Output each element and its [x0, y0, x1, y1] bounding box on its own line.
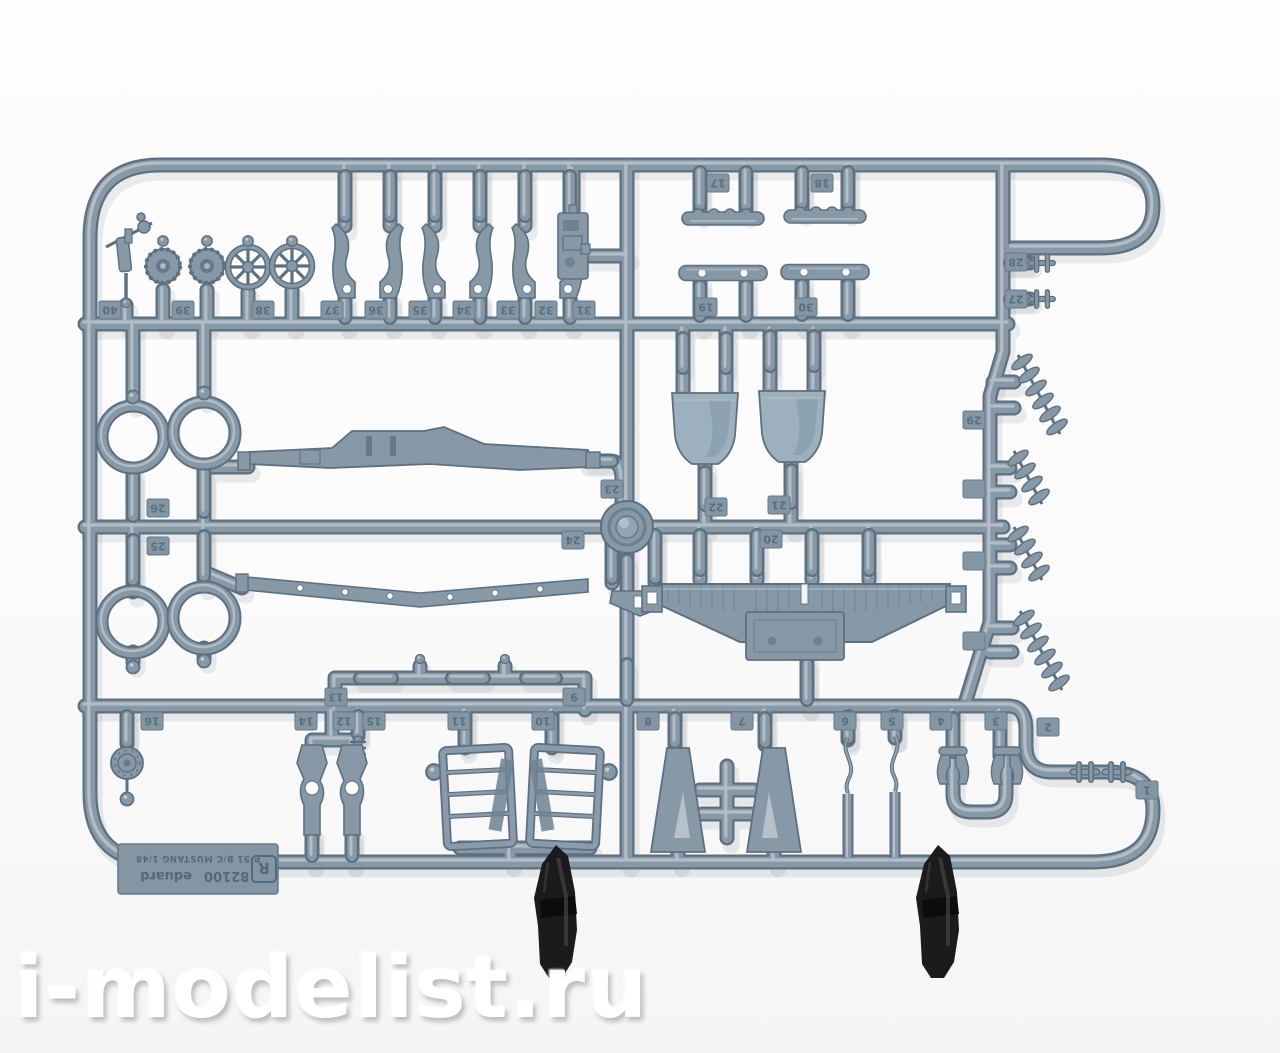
part-number-tab: 6	[834, 712, 856, 730]
svg-text:11: 11	[451, 715, 466, 728]
part-number-tab: 1	[1136, 781, 1158, 799]
svg-text:1: 1	[1143, 784, 1151, 797]
svg-text:16: 16	[144, 715, 160, 728]
svg-text:31: 31	[576, 304, 591, 317]
part-number-tab: 33	[497, 301, 519, 319]
part-number-tab	[963, 552, 985, 570]
part-gear-brackets	[297, 745, 367, 835]
part-intake-scoops	[672, 391, 825, 464]
part-number-tab: 40	[99, 301, 121, 319]
part-number-tab: 21	[768, 496, 790, 514]
svg-text:27: 27	[1008, 293, 1023, 306]
part-number-tab: 37	[321, 301, 343, 319]
part-brackets-row	[332, 224, 583, 298]
part-number-tab: 22	[705, 498, 727, 516]
svg-text:19: 19	[698, 301, 713, 314]
part-number-tab: 8	[637, 712, 659, 730]
part-pitot-tees	[1031, 256, 1053, 306]
part-number-tab: 39	[172, 301, 194, 319]
svg-text:8: 8	[644, 715, 652, 728]
svg-text:21: 21	[771, 499, 786, 512]
part-number-tab: 5	[881, 712, 903, 730]
part-number-tab: 29	[963, 411, 985, 429]
part-radio-box	[558, 205, 590, 279]
svg-text:6: 6	[841, 715, 849, 728]
part-exhaust-manifolds	[679, 207, 869, 281]
part-wheel-hubs	[146, 246, 312, 287]
svg-text:2: 2	[1044, 721, 1052, 734]
svg-text:23: 23	[604, 483, 619, 496]
svg-text:30: 30	[798, 301, 814, 314]
part-number-tab: 28	[1005, 253, 1027, 271]
svg-text:3: 3	[992, 715, 1000, 728]
svg-text:25: 25	[150, 540, 165, 553]
part-number-tab: 17	[707, 174, 729, 192]
part-number-tab: 18	[811, 174, 833, 192]
part-number-tab: 2	[1037, 718, 1059, 736]
part-number-tab: 7	[731, 712, 753, 730]
sprue-letter: R	[258, 859, 270, 877]
svg-text:39: 39	[175, 304, 190, 317]
part-number-tab: 16	[141, 712, 163, 730]
svg-text:5: 5	[888, 715, 896, 728]
sprue-label-code: 82100	[204, 868, 249, 883]
part-number-tab: 13	[325, 688, 347, 706]
part-number-tab: 30	[795, 298, 817, 316]
part-number-tab: 26	[147, 499, 169, 517]
part-number-tab: 4	[930, 712, 952, 730]
part-number-tab: 10	[532, 712, 554, 730]
svg-text:38: 38	[255, 304, 270, 317]
svg-text:17: 17	[710, 177, 725, 190]
part-gunsight	[106, 213, 152, 299]
part-number-tab: 24	[562, 531, 584, 549]
part-number-tab: 14	[295, 712, 317, 730]
svg-text:20: 20	[763, 533, 779, 546]
svg-text:14: 14	[298, 715, 314, 728]
svg-text:35: 35	[412, 304, 427, 317]
part-number-tab: 34	[453, 301, 475, 319]
part-number-tab: 19	[695, 298, 717, 316]
part-number-tab: 32	[535, 301, 557, 319]
svg-text:34: 34	[456, 304, 472, 317]
svg-text:29: 29	[966, 414, 981, 427]
svg-text:32: 32	[538, 304, 553, 317]
part-number-tab: 15	[363, 712, 385, 730]
part-number-tab: 38	[252, 301, 274, 319]
svg-text:28: 28	[1008, 256, 1023, 269]
svg-text:10: 10	[535, 715, 551, 728]
part-number-tab: 11	[448, 712, 470, 730]
svg-text:40: 40	[102, 304, 118, 317]
part-pulley-disc	[111, 747, 143, 793]
svg-text:4: 4	[937, 715, 945, 728]
part-number-tab: 35	[409, 301, 431, 319]
svg-text:9: 9	[570, 691, 578, 704]
svg-text:15: 15	[366, 715, 381, 728]
sprue-gate-hub	[601, 501, 653, 553]
sprue-illustration: 40 39 38 37 36 35 34 33 32 31 17 18 19 3…	[0, 0, 1280, 1053]
svg-text:33: 33	[500, 304, 515, 317]
part-number-tab	[963, 480, 985, 498]
svg-text:36: 36	[368, 304, 384, 317]
part-wing-spar-upper	[238, 427, 600, 470]
part-number-tab: 9	[563, 688, 585, 706]
part-wire-left	[845, 738, 851, 858]
svg-text:7: 7	[738, 715, 746, 728]
part-wire-right	[892, 736, 898, 858]
part-number-tab: 23	[601, 480, 623, 498]
part-cockpit-floor	[642, 584, 966, 660]
sprue-label-brand: eduard	[140, 868, 192, 883]
sprue-label: 82100 eduard P-51 B/C MUSTANG 1/48 R	[118, 844, 278, 894]
svg-text:13: 13	[328, 691, 343, 704]
svg-text:12: 12	[336, 715, 351, 728]
part-number-tab	[963, 632, 985, 650]
sprue-photo: 40 39 38 37 36 35 34 33 32 31 17 18 19 3…	[0, 0, 1280, 1053]
svg-text:37: 37	[324, 304, 339, 317]
part-number-tab: 27	[1005, 290, 1027, 308]
svg-text:22: 22	[708, 501, 723, 514]
part-number-tab: 31	[573, 301, 595, 319]
svg-text:24: 24	[565, 534, 581, 547]
part-number-tab: 20	[760, 530, 782, 548]
part-number-tab: 36	[365, 301, 387, 319]
watermark: i-modelist.ru	[14, 938, 648, 1038]
svg-text:26: 26	[150, 502, 166, 515]
part-number-tab: 12	[333, 712, 355, 730]
svg-text:18: 18	[814, 177, 829, 190]
part-number-tab: 3	[985, 712, 1007, 730]
part-number-tab: 25	[147, 537, 169, 555]
sprue-label-kit: P-51 B/C MUSTANG 1/48	[136, 853, 261, 863]
